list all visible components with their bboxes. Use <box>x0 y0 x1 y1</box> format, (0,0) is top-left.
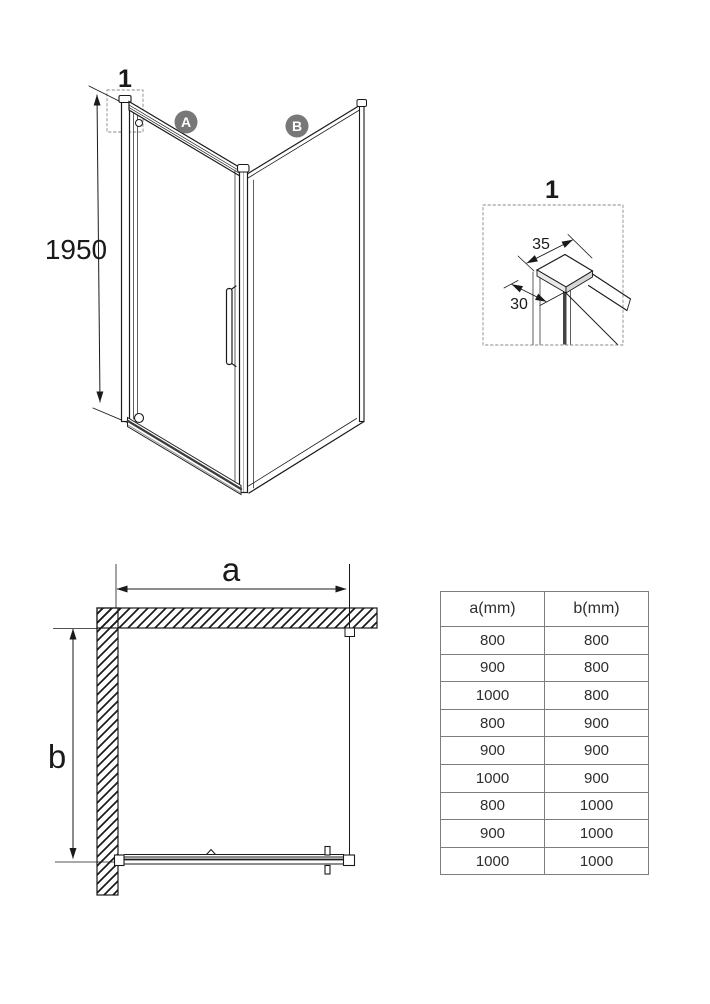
cell-a-value: 900 <box>441 820 545 848</box>
size-table-row: 800 900 <box>441 709 649 737</box>
iso-side-panel <box>248 100 367 494</box>
cell-b-value: 1000 <box>545 820 649 848</box>
cell-b-value: 900 <box>545 709 649 737</box>
plan-view: a b <box>48 551 377 895</box>
panel-b-badge: B <box>286 115 309 138</box>
cell-b-value: 800 <box>545 627 649 655</box>
size-table-row: 1000 1000 <box>441 847 649 875</box>
cell-b-value: 900 <box>545 764 649 792</box>
spec-sheet-page: 1 1950 <box>0 0 710 1004</box>
cell-a-value: 1000 <box>441 847 545 875</box>
bottom-pivot <box>135 414 144 423</box>
detail-view: 1 <box>483 176 631 345</box>
plan-door-pivot <box>207 850 216 855</box>
plan-door-right-profile <box>344 855 355 866</box>
col-header-b: b(mm) <box>545 592 649 627</box>
iso-left-profile <box>119 96 144 423</box>
cell-b-value: 800 <box>545 682 649 710</box>
plan-handle-bottom <box>325 866 330 875</box>
size-table-header-row: a(mm) b(mm) <box>441 592 649 627</box>
panel-a-badge-label: A <box>181 114 191 130</box>
cell-a-value: 800 <box>441 627 545 655</box>
a-dim-label: a <box>222 551 241 588</box>
iso-view: 1 1950 <box>45 65 367 495</box>
panel-a-badge: A <box>175 111 198 134</box>
size-table-row: 800 800 <box>441 627 649 655</box>
plan-door <box>115 847 355 875</box>
cell-b-value: 900 <box>545 737 649 765</box>
b-dim-label: b <box>48 738 66 775</box>
iso-callout-label: 1 <box>118 65 132 93</box>
cell-a-value: 1000 <box>441 682 545 710</box>
detail-glass-edge <box>589 274 631 311</box>
cell-b-value: 1000 <box>545 792 649 820</box>
iso-bottom-rail <box>128 418 242 495</box>
size-table-row: 900 1000 <box>441 820 649 848</box>
detail-cap <box>537 255 593 294</box>
detail-callout-label: 1 <box>545 176 559 204</box>
size-table-row: 1000 900 <box>441 764 649 792</box>
plan-left-wall <box>97 608 118 895</box>
height-dimension-label: 1950 <box>45 234 107 265</box>
size-table-row: 800 1000 <box>441 792 649 820</box>
cell-a-value: 1000 <box>441 764 545 792</box>
plan-wall-bracket <box>345 628 355 637</box>
panel-b-badge-label: B <box>292 118 302 134</box>
cell-a-value: 900 <box>441 737 545 765</box>
size-table-body: 800 800 900 800 1000 800 800 900 <box>441 627 649 875</box>
size-table-row: 900 800 <box>441 654 649 682</box>
cell-a-value: 800 <box>441 792 545 820</box>
col-header-a: a(mm) <box>441 592 545 627</box>
size-table-row: 900 900 <box>441 737 649 765</box>
plan-door-left-profile <box>115 855 125 866</box>
iso-corner-profile <box>238 165 250 493</box>
cell-b-value: 800 <box>545 654 649 682</box>
detail-dim-30-label: 30 <box>510 296 528 313</box>
size-table: a(mm) b(mm) 800 800 900 800 1000 800 <box>440 591 649 875</box>
plan-handle-top <box>325 847 330 856</box>
detail-dim-35-label: 35 <box>532 236 550 253</box>
plan-top-wall <box>97 608 377 628</box>
cell-a-value: 800 <box>441 709 545 737</box>
door-handle <box>227 286 237 367</box>
top-hinge <box>136 120 143 127</box>
cell-b-value: 1000 <box>545 847 649 875</box>
size-table-row: 1000 800 <box>441 682 649 710</box>
cell-a-value: 900 <box>441 654 545 682</box>
